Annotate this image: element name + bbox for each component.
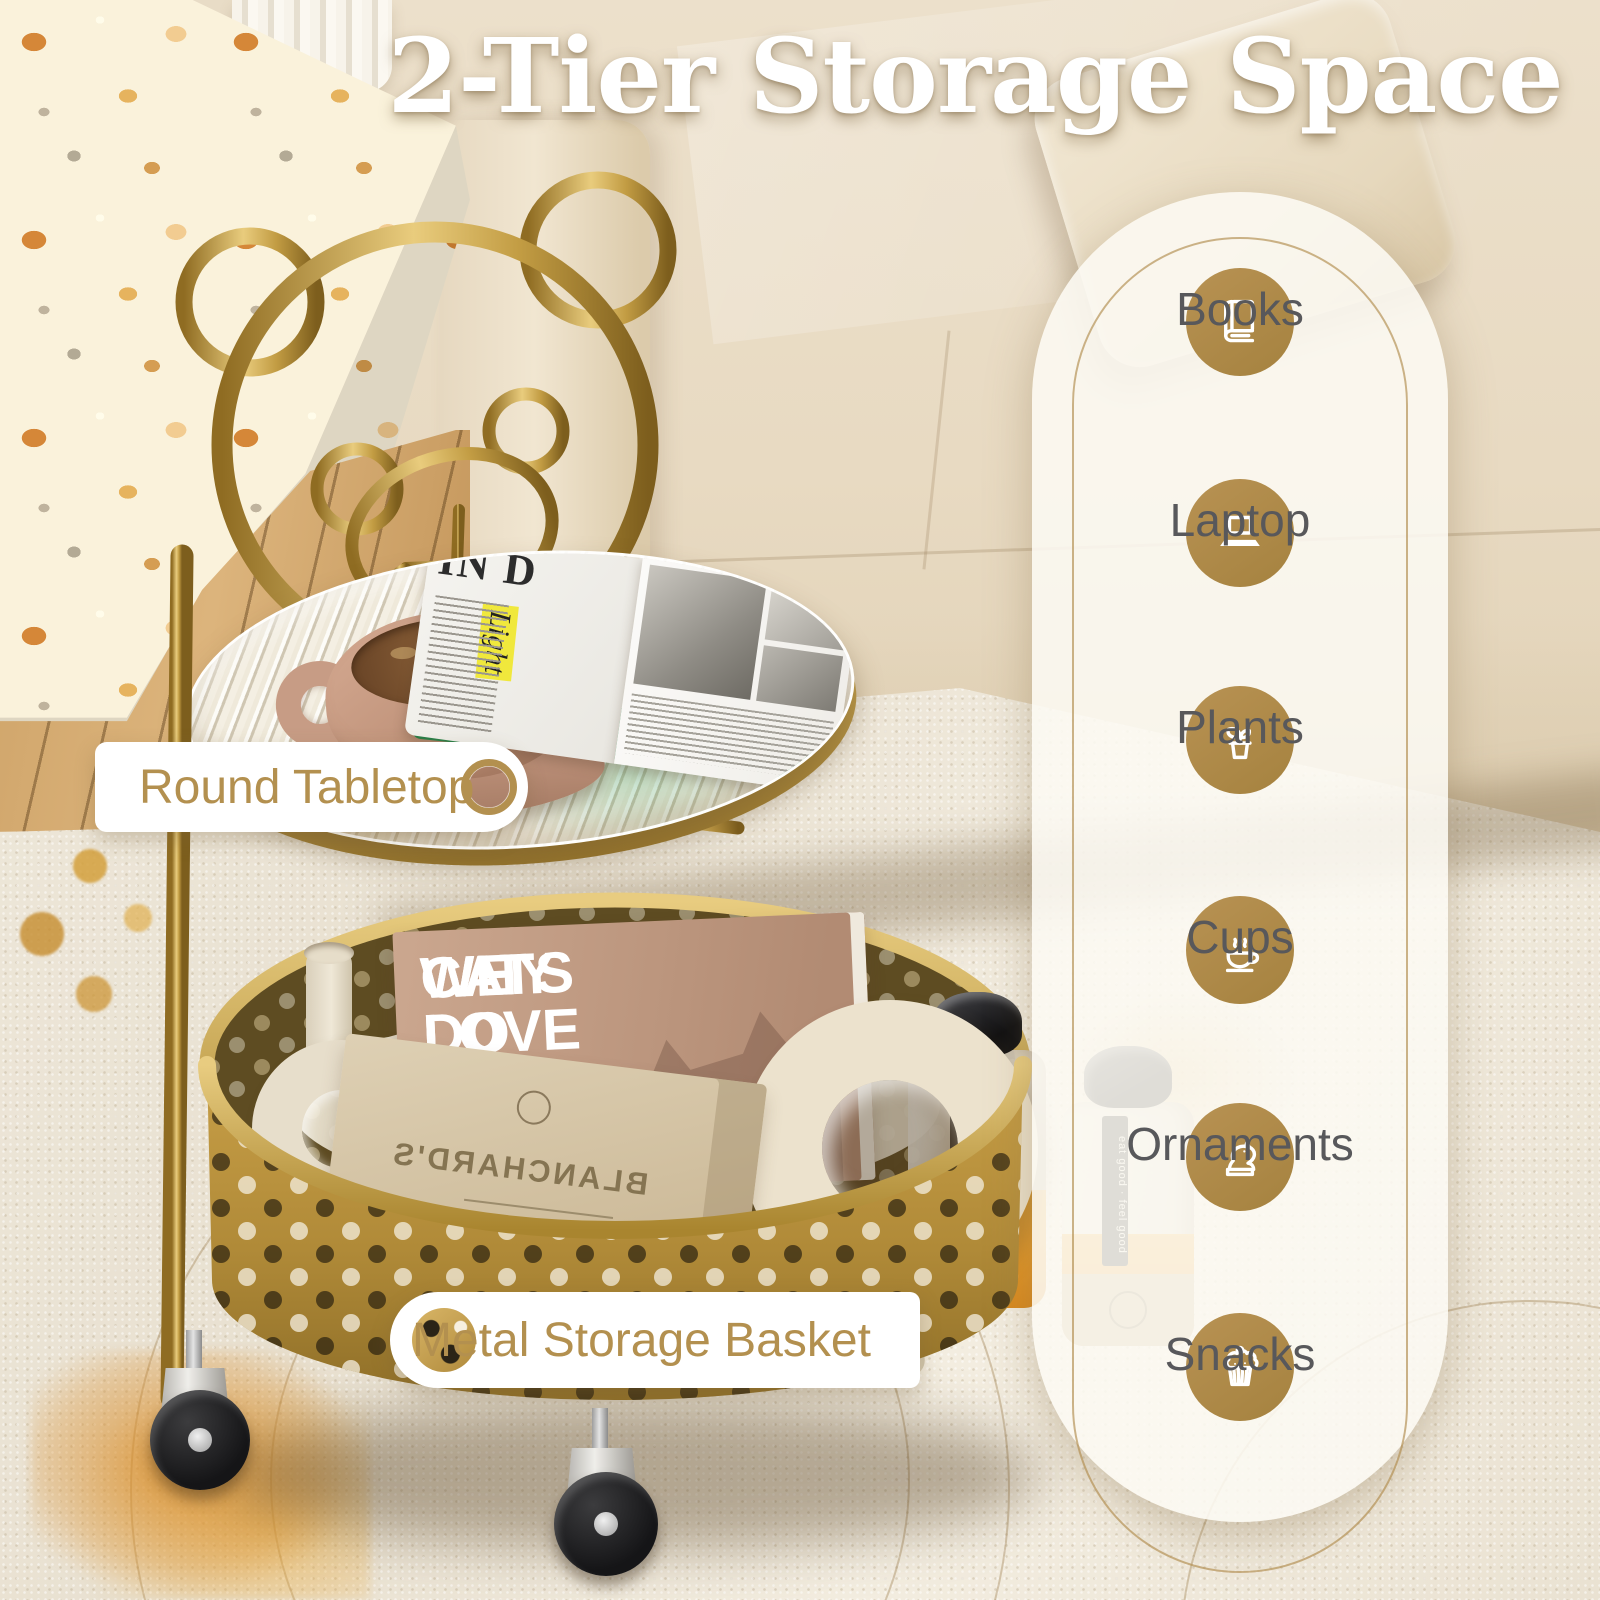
feature-label: Books — [1176, 282, 1304, 336]
tabletop-callout: Round Tabletop — [95, 742, 528, 832]
feature-label: Plants — [1176, 700, 1304, 754]
basket-callout-label: Metal Storage Basket — [412, 1313, 871, 1368]
feature-label: Laptop — [1170, 493, 1311, 547]
feature-label: Ornaments — [1126, 1117, 1354, 1171]
feature-label: Cups — [1186, 910, 1293, 964]
ring-icon — [461, 759, 517, 815]
product-infographic: IN D Light — [0, 0, 1600, 1600]
page-title: 2-Tier Storage Space — [340, 16, 1600, 137]
basket-callout: Metal Storage Basket — [390, 1292, 920, 1388]
tabletop-callout-label: Round Tabletop — [139, 760, 474, 815]
feature-label: Snacks — [1165, 1327, 1316, 1381]
